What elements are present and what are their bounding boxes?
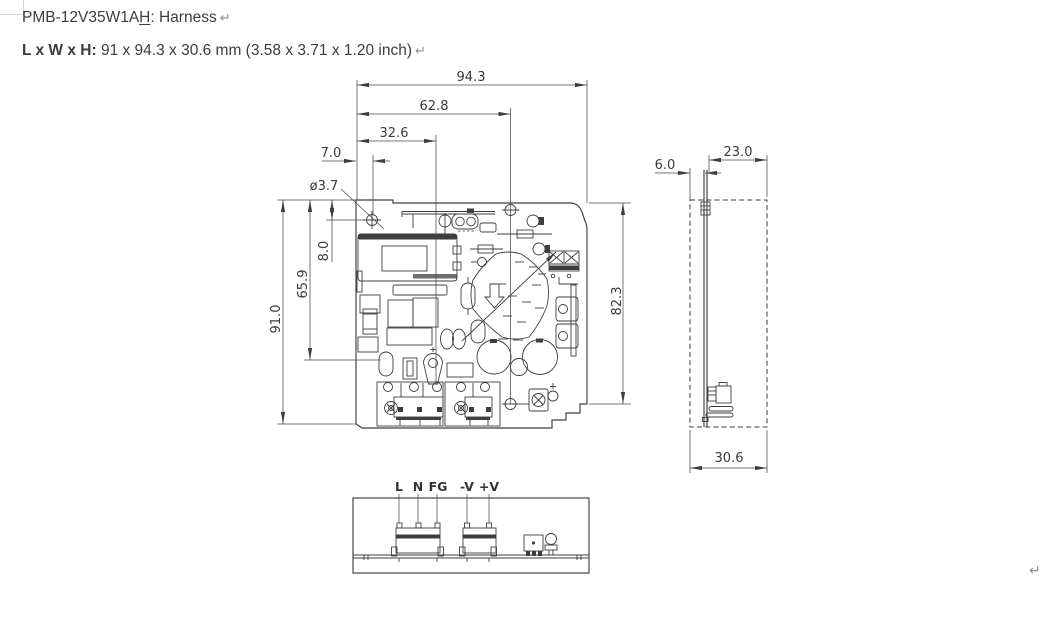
- capacitor-with-stem: [439, 213, 451, 234]
- electrolytic-capacitors: [477, 339, 558, 376]
- to220-package-2: [556, 324, 578, 348]
- top-view-dimensions: 94.3 62.8 32.6 7.0 ø3.7 8.0 65.9 91.0 82…: [269, 70, 631, 424]
- potentiometer: [517, 389, 548, 411]
- side-view-envelope: [690, 200, 767, 427]
- terminal-label-FG: FG: [429, 479, 448, 494]
- terminal-label-N: N: [413, 479, 423, 494]
- input-filter-components: [357, 271, 447, 352]
- transistor-2: [533, 243, 550, 255]
- insulation-sheet: [462, 252, 556, 341]
- terminal-label-minusV: -V: [460, 479, 474, 494]
- return-mark-corner: ↵: [1029, 563, 1041, 579]
- mounting-hole-top-left: [363, 211, 381, 229]
- dim-label-65-9: 65.9: [296, 270, 311, 299]
- dim-label-30-6: 30.6: [715, 451, 744, 466]
- led-indicator: [548, 383, 558, 401]
- dim-label-8-0: 8.0: [317, 241, 332, 262]
- transformer: [358, 234, 461, 281]
- small-component: [480, 223, 496, 232]
- dim-label-32-6: 32.6: [380, 126, 409, 141]
- terminal-label-plusV: +V: [479, 479, 499, 494]
- terminal-screw-2: [455, 402, 468, 415]
- dim-label-94-3: 94.3: [457, 70, 486, 85]
- dual-capacitor-box: [452, 214, 478, 231]
- front-led: [545, 534, 557, 556]
- hole-leader-line: [341, 189, 384, 229]
- front-connector-block-output: [460, 523, 497, 562]
- front-potentiometer: [524, 535, 543, 556]
- dim-label-82-3: 82.3: [610, 287, 625, 316]
- lower-left-components: [379, 347, 473, 384]
- front-view: L N FG -V +V: [353, 479, 589, 573]
- front-connector-block-input: [392, 523, 444, 562]
- dim-label-91-0: 91.0: [269, 305, 284, 334]
- dim-label-hole-dia: ø3.7: [310, 179, 339, 194]
- side-view: 6.0 23.0 30.6: [655, 145, 767, 473]
- resistor: [497, 230, 552, 238]
- section-leader-line: [462, 252, 556, 341]
- dim-label-6-0: 6.0: [655, 158, 676, 173]
- diode: [470, 245, 503, 253]
- input-connector-blocks: [377, 382, 500, 426]
- mechanical-drawing: 94.3 62.8 32.6 7.0 ø3.7 8.0 65.9 91.0 82…: [0, 0, 1041, 630]
- transistor-1: [527, 215, 544, 227]
- side-view-dimensions: 6.0 23.0 30.6: [655, 145, 767, 473]
- side-view-top-component: [701, 202, 710, 215]
- output-terminal-block: [549, 251, 579, 278]
- terminal-labels: L N FG -V +V: [395, 479, 499, 523]
- terminal-screw-1: [385, 402, 398, 415]
- top-bar-component: [402, 209, 495, 229]
- heatsink-bracket: [559, 277, 578, 356]
- dim-label-7-0: 7.0: [321, 146, 342, 161]
- dim-label-23-0: 23.0: [724, 145, 753, 160]
- to220-package-1: [556, 297, 578, 321]
- dim-label-62-8: 62.8: [420, 99, 449, 114]
- terminal-label-L: L: [395, 479, 403, 494]
- top-view: 94.3 62.8 32.6 7.0 ø3.7 8.0 65.9 91.0 82…: [269, 70, 631, 428]
- document-page: PMB-12V35W1AH: Harness↵ L x W x H: 91 x …: [0, 0, 1041, 630]
